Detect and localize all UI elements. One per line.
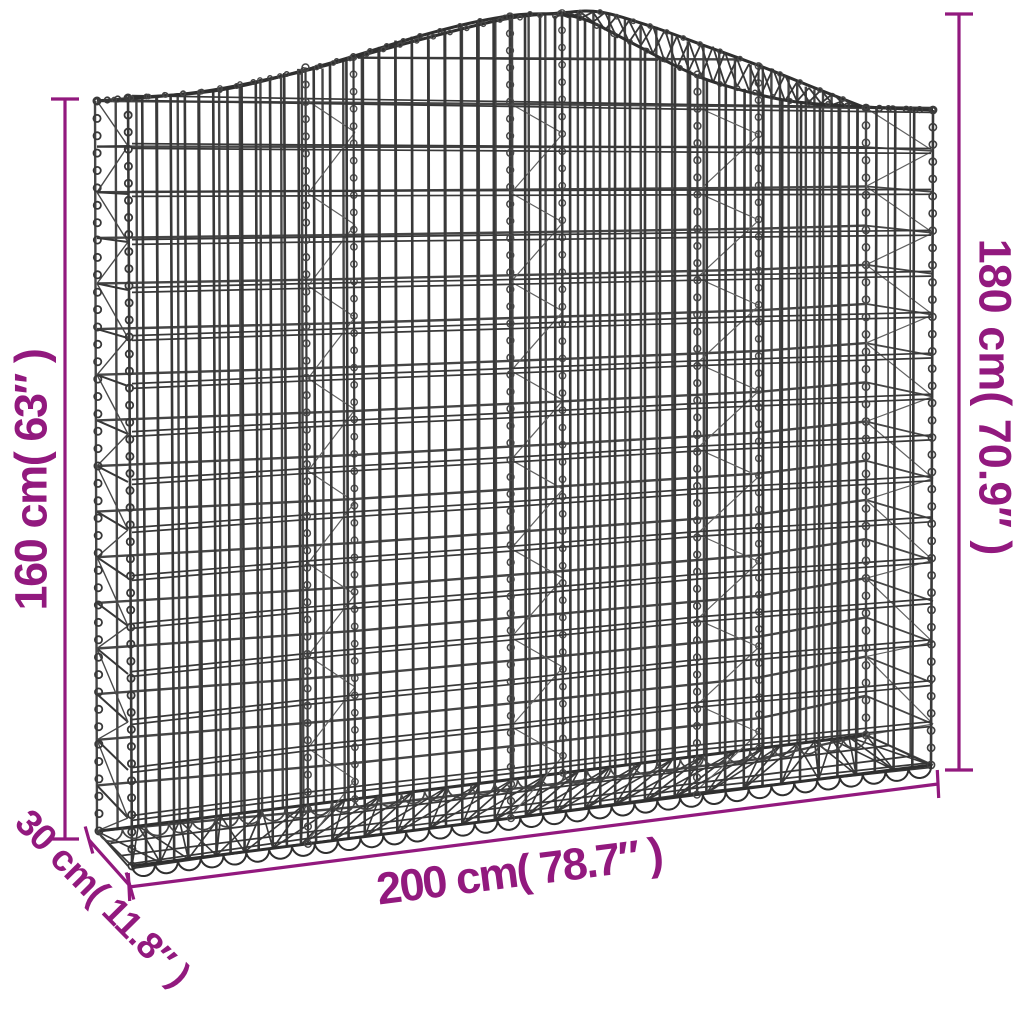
svg-text:180 cm( 70.9″ ): 180 cm( 70.9″ ) [970,239,1021,556]
svg-text:160 cm( 63″ ): 160 cm( 63″ ) [6,349,57,610]
